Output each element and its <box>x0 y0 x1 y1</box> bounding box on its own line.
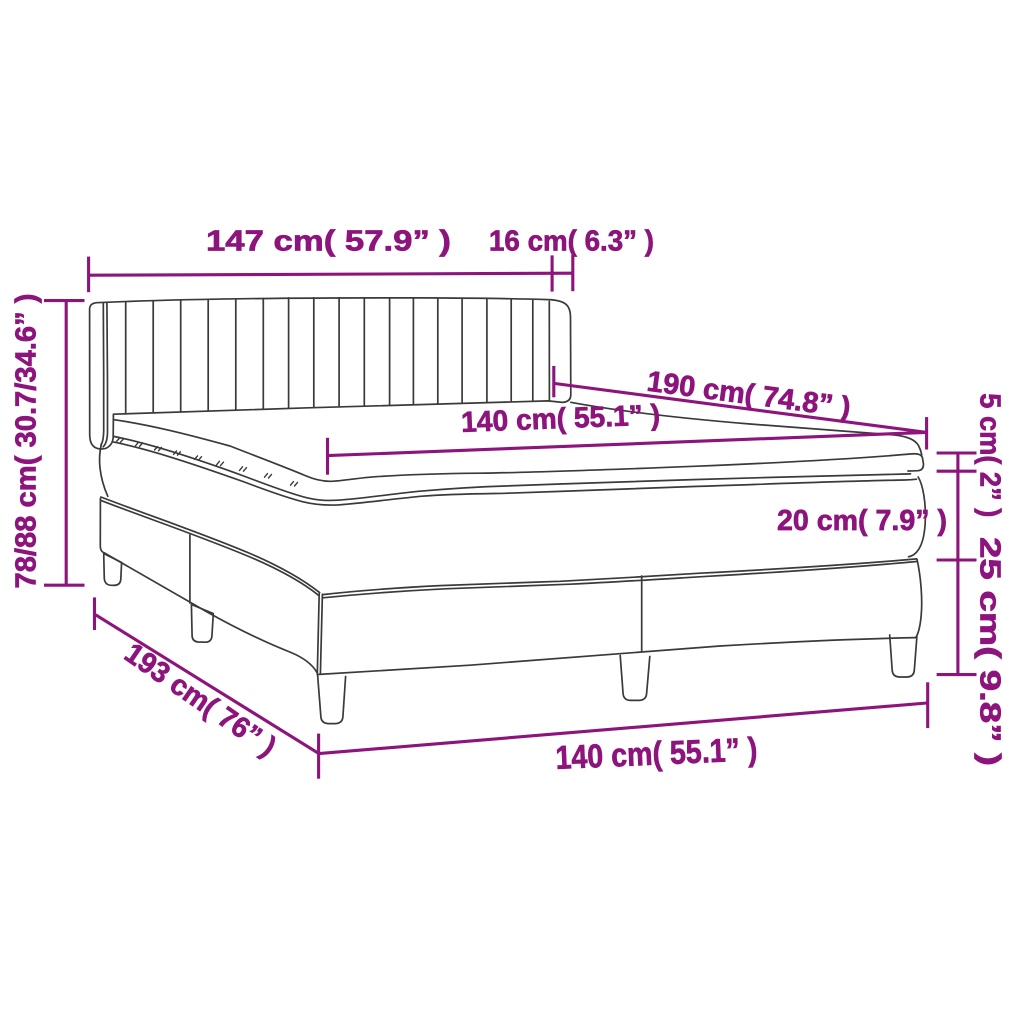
svg-text:147 cm( 57.9” ): 147 cm( 57.9” ) <box>206 226 451 258</box>
svg-text:78/88 cm( 30.7/34.6” ): 78/88 cm( 30.7/34.6” ) <box>11 294 43 589</box>
svg-text:20 cm( 7.9” ): 20 cm( 7.9” ) <box>777 505 947 537</box>
svg-text:25 cm( 9.8” ): 25 cm( 9.8” ) <box>974 537 1006 766</box>
svg-text:5 cm( 2” ): 5 cm( 2” ) <box>974 393 1006 517</box>
svg-text:16 cm( 6.3” ): 16 cm( 6.3” ) <box>489 226 654 258</box>
